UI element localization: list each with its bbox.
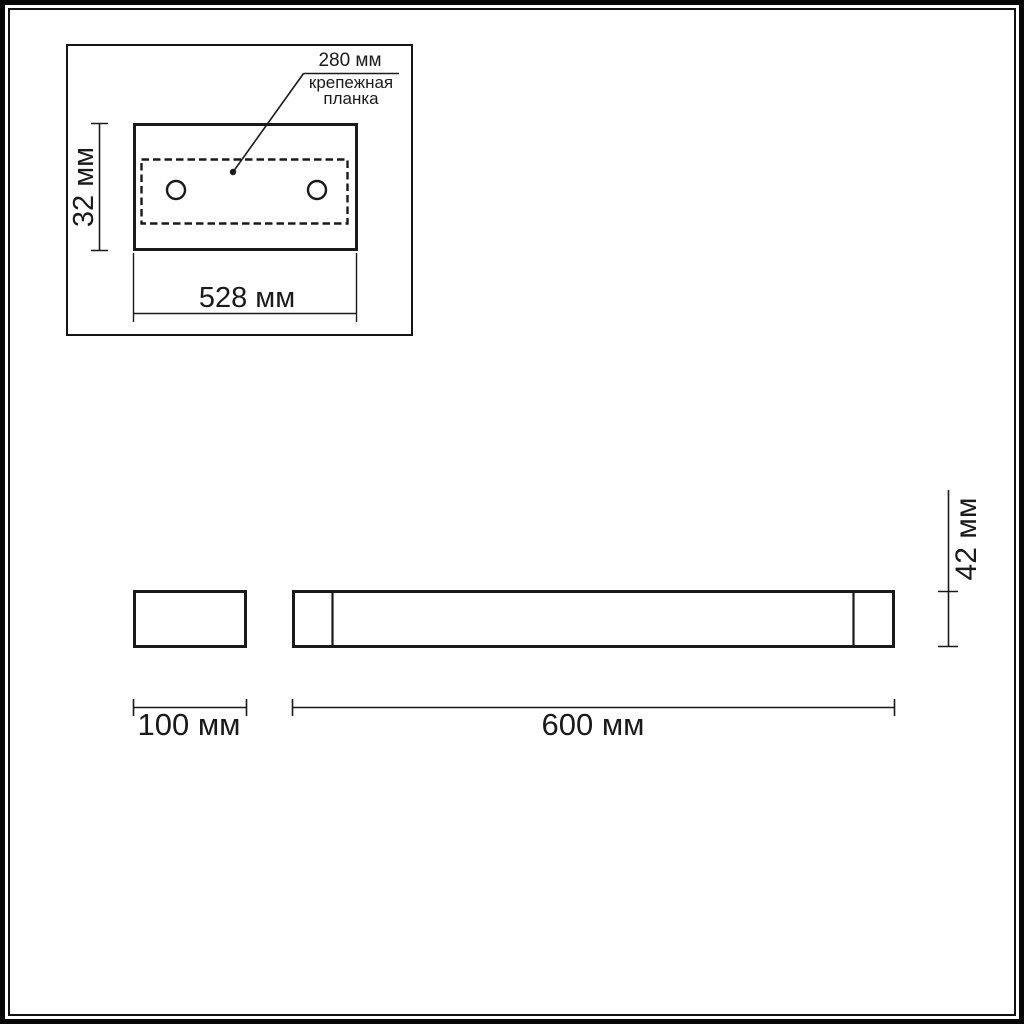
height-42-label: 42 мм — [951, 459, 983, 619]
height-32-label: 32 мм — [69, 117, 99, 257]
length-600-label: 600 мм — [493, 710, 693, 740]
fixture-side-view-outline — [135, 592, 246, 647]
drawing-svg — [0, 0, 1024, 1024]
fixture-front-view-outline — [294, 592, 894, 647]
depth-100-label: 100 мм — [89, 710, 289, 740]
callout-text-line2: планка — [293, 91, 409, 107]
callout-value-label: 280 мм — [299, 51, 401, 71]
mounting-hole-left — [167, 181, 185, 199]
dimension-drawing-page: 280 мм крепежная планка 32 мм 528 мм 42 … — [0, 0, 1024, 1024]
mounting-hole-right — [308, 181, 326, 199]
width-528-label: 528 мм — [147, 284, 347, 312]
